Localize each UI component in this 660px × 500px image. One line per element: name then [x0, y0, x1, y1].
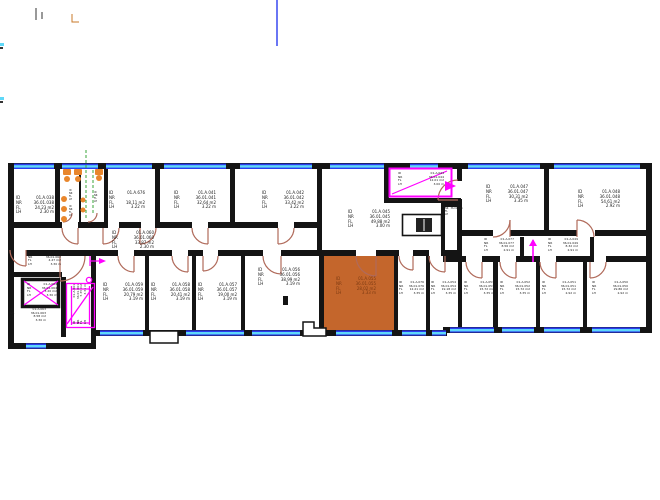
label-key: LH	[548, 249, 552, 253]
room-label-wc-1: IDNRFLLH	[69, 190, 83, 202]
label-value: 36.01.046	[450, 208, 462, 211]
room-label-01A047: ID01.A.047NR36.01.047FL30.31 m2LH3.35 m	[486, 185, 528, 204]
label-value: 3.22 m	[202, 205, 216, 210]
label-key: LH	[399, 292, 403, 296]
label-value: 01.A.676	[127, 191, 145, 196]
label-value: 3.19 m	[176, 297, 190, 302]
room-label-row: LH3.19 m	[198, 297, 237, 302]
label-value: 3.30 m	[46, 294, 57, 298]
label-value: 3.35 m	[413, 292, 424, 296]
label-key: LH	[348, 224, 353, 229]
room-label-01A045: ID01.A.045NR36.01.045FL49.88 m2LH3.00 m	[348, 210, 390, 229]
room-label-row: LH3.35 m	[464, 292, 494, 296]
room-label-row: LH3.30 m	[10, 319, 46, 323]
label-key: LH	[94, 201, 97, 204]
room-label-01A052: ID01.A.052NR36.01.052FL15.72 m2LH3.35 m	[500, 281, 530, 295]
label-key: LH	[336, 291, 341, 296]
label-key: LH	[84, 320, 88, 324]
room-label-row: LH2.30 m	[16, 210, 54, 215]
room-label-row: LH3.33 m	[336, 291, 376, 296]
label-value: 3.19 m	[223, 297, 237, 302]
floor-plan-canvas: ID01.A.038NR36.01.038FL24.23 m2LH2.30 m …	[0, 0, 660, 500]
room-label-row: LH2.91 m	[548, 249, 578, 253]
label-value: 3.31 m	[84, 284, 88, 295]
label-value: 2.92 m	[606, 204, 620, 209]
label-value: 2.30 m	[40, 210, 54, 215]
room-label-row: LH2.92 m	[542, 292, 576, 296]
label-value: 3.22 m	[131, 205, 145, 210]
label-value: 3.33 m	[362, 291, 376, 296]
room-label-row: LH	[69, 199, 83, 202]
label-key: LH	[262, 205, 267, 210]
label-key: LH	[69, 199, 72, 202]
label-value: 2.92 m	[617, 292, 628, 296]
room-label-01A046: ID01.A.046NR36.01.046FLLH	[445, 205, 459, 217]
room-label-01A057: ID01.A.057NR36.01.057FL19.00 m2LH3.19 m	[198, 283, 237, 302]
label-key: LH	[27, 294, 31, 298]
label-value: 3.35 m	[445, 292, 456, 296]
room-label-01A062: ID01.A.062NR36.01.062FL4.47 m2LH3.30 m	[28, 252, 61, 266]
room-label-01A059: ID01.A.059NR36.01.059FL20.79 m2LH3.19 m	[103, 283, 143, 302]
room-label-row: LH	[445, 214, 459, 217]
room-label-row: LH3.19 m	[103, 297, 143, 302]
room-label-row: LH3.22 m	[109, 205, 145, 210]
room-label-row: LH2.92 m	[578, 204, 620, 209]
label-value: 3.00 m	[376, 224, 390, 229]
label-key: LH	[484, 249, 488, 253]
label-key: LH	[398, 183, 402, 187]
label-value: 2.91 m	[503, 249, 514, 253]
room-label-01A041: ID01.A.041NR36.01.041FL32.64 m2LH3.22 m	[174, 191, 216, 210]
room-label-01A056: ID01.A.056NR36.01.056FL38.99 m2LH3.19 m	[258, 268, 300, 287]
room-label-01A044: ID01.A.044NR36.01.044FL12.01 m2LH3.00 m	[398, 172, 444, 186]
room-label-wc-3: IDNRFLLH	[94, 192, 108, 204]
room-label-01A061: ID01.A.061NR36.01.061FL5.35 m2LH3.31 m	[73, 284, 87, 324]
room-label-01A063: ID01.A.063NR36.01.063FL8.58 m2LH3.30 m	[10, 308, 46, 322]
room-label-01A055: ID01.A.055NR36.01.055FL28.02 m2LH3.33 m	[336, 277, 376, 296]
room-label-row: LH	[69, 215, 83, 218]
label-value: 2.30 m	[140, 245, 154, 250]
label-value: 3.30 m	[50, 263, 61, 267]
room-label-row: LH2.91 m	[484, 249, 514, 253]
label-key: LH	[542, 292, 546, 296]
label-value: 2.92 m	[565, 292, 576, 296]
elevator-symbol	[403, 215, 442, 236]
label-key: LH	[198, 297, 203, 302]
room-label-01A064: ID01.A.064NR36.01.064FL3.20 m2LH3.30 m	[27, 283, 57, 297]
room-label-01A053: ID01.A.053NR36.01.053FL15.72 m2LH3.35 m	[464, 281, 494, 295]
room-label-01A048: ID01.A.048NR36.01.048FL54.61 m2LH2.92 m	[578, 190, 620, 209]
room-label-row: LH2.92 m	[592, 292, 628, 296]
room-label-01A077: ID01.A.077NR36.01.077FL8.56 m2LH2.91 m	[484, 238, 514, 252]
label-key: LH	[500, 292, 504, 296]
label-key: LH	[431, 292, 435, 296]
label-key: LH	[486, 199, 491, 204]
label-key: LH	[578, 204, 583, 209]
room-label-01A038: ID01.A.038NR36.01.038FL24.23 m2LH2.30 m	[16, 196, 54, 215]
room-label-row: LH3.35 m	[486, 199, 528, 204]
room-label-row: LH3.30 m	[28, 263, 61, 267]
label-key: LH	[28, 263, 32, 267]
label-value: 3.35 m	[519, 292, 530, 296]
room-label-row: LH3.30 m	[27, 294, 57, 298]
label-key: LH	[592, 292, 596, 296]
room-label-row: LH3.00 m	[398, 183, 444, 187]
room-label-01A051: ID01.A.051NR36.01.051FL15.72 m2LH2.92 m	[542, 281, 576, 295]
room-label-01A054: ID01.A.054NR36.01.054FL19.18 m2LH3.35 m	[431, 281, 456, 295]
room-label-row: LH3.35 m	[399, 292, 424, 296]
label-key: LH	[103, 297, 108, 302]
installation-lines-group	[86, 150, 93, 218]
room-label-row: LH3.22 m	[262, 205, 304, 210]
label-key: LH	[258, 282, 263, 287]
room-label-row: LH3.22 m	[174, 205, 216, 210]
plot-artifacts-group	[0, 0, 277, 103]
label-value: 2.91 m	[567, 249, 578, 253]
room-label-01A076: ID01.A.076NR36.01.076FL12.21 m2LH3.35 m	[399, 281, 424, 295]
label-key: LH	[112, 245, 117, 250]
room-label-row: LH2.30 m	[112, 245, 154, 250]
entrance-vestibule	[150, 331, 178, 343]
room-label-row: LH3.35 m	[431, 292, 456, 296]
label-value: 3.19 m	[286, 282, 300, 287]
label-value: 3.35 m	[514, 199, 528, 204]
label-value: 3.30 m	[35, 319, 46, 323]
label-value: 3.35 m	[483, 292, 494, 296]
label-key: LH	[174, 205, 179, 210]
room-label-row: LH3.31 m	[84, 284, 88, 324]
label-value: 3.22 m	[290, 205, 304, 210]
room-label-wc-2: IDNRFLLH	[69, 206, 83, 218]
label-key: LH	[151, 297, 156, 302]
room-label-01A050: ID01.A.050NR36.01.050FL29.86 m2LH2.92 m	[592, 281, 628, 295]
room-label-01A049: ID01.A.049NR36.01.049FL8.32 m2LH2.91 m	[548, 238, 578, 252]
label-key: LH	[16, 210, 21, 215]
label-value: 3.19 m	[129, 297, 143, 302]
room-label-row: LH3.19 m	[151, 297, 190, 302]
label-key: LH	[69, 215, 72, 218]
label-key: LH	[109, 205, 114, 210]
room-label-row: LH3.35 m	[500, 292, 530, 296]
room-label-01A060: ID01.A.060NR36.01.060FL33.87 m2LH2.30 m	[112, 231, 154, 250]
label-key: LH	[445, 214, 448, 217]
label-key: LH	[464, 292, 468, 296]
room-label-row: LH3.19 m	[258, 282, 300, 287]
room-label-row: LH	[94, 201, 108, 204]
label-key: LH	[10, 319, 14, 323]
room-label-row: LH3.00 m	[348, 224, 390, 229]
room-label-01A058: ID01.A.058NR36.01.058FL20.41 m2LH3.19 m	[151, 283, 190, 302]
room-label-01A676: ID01.A.676NRFL18.11 m2LH3.22 m	[109, 191, 145, 210]
room-label-01A042: ID01.A.042NR36.01.042FL33.42 m2LH3.22 m	[262, 191, 304, 210]
label-value: 3.00 m	[433, 183, 444, 187]
